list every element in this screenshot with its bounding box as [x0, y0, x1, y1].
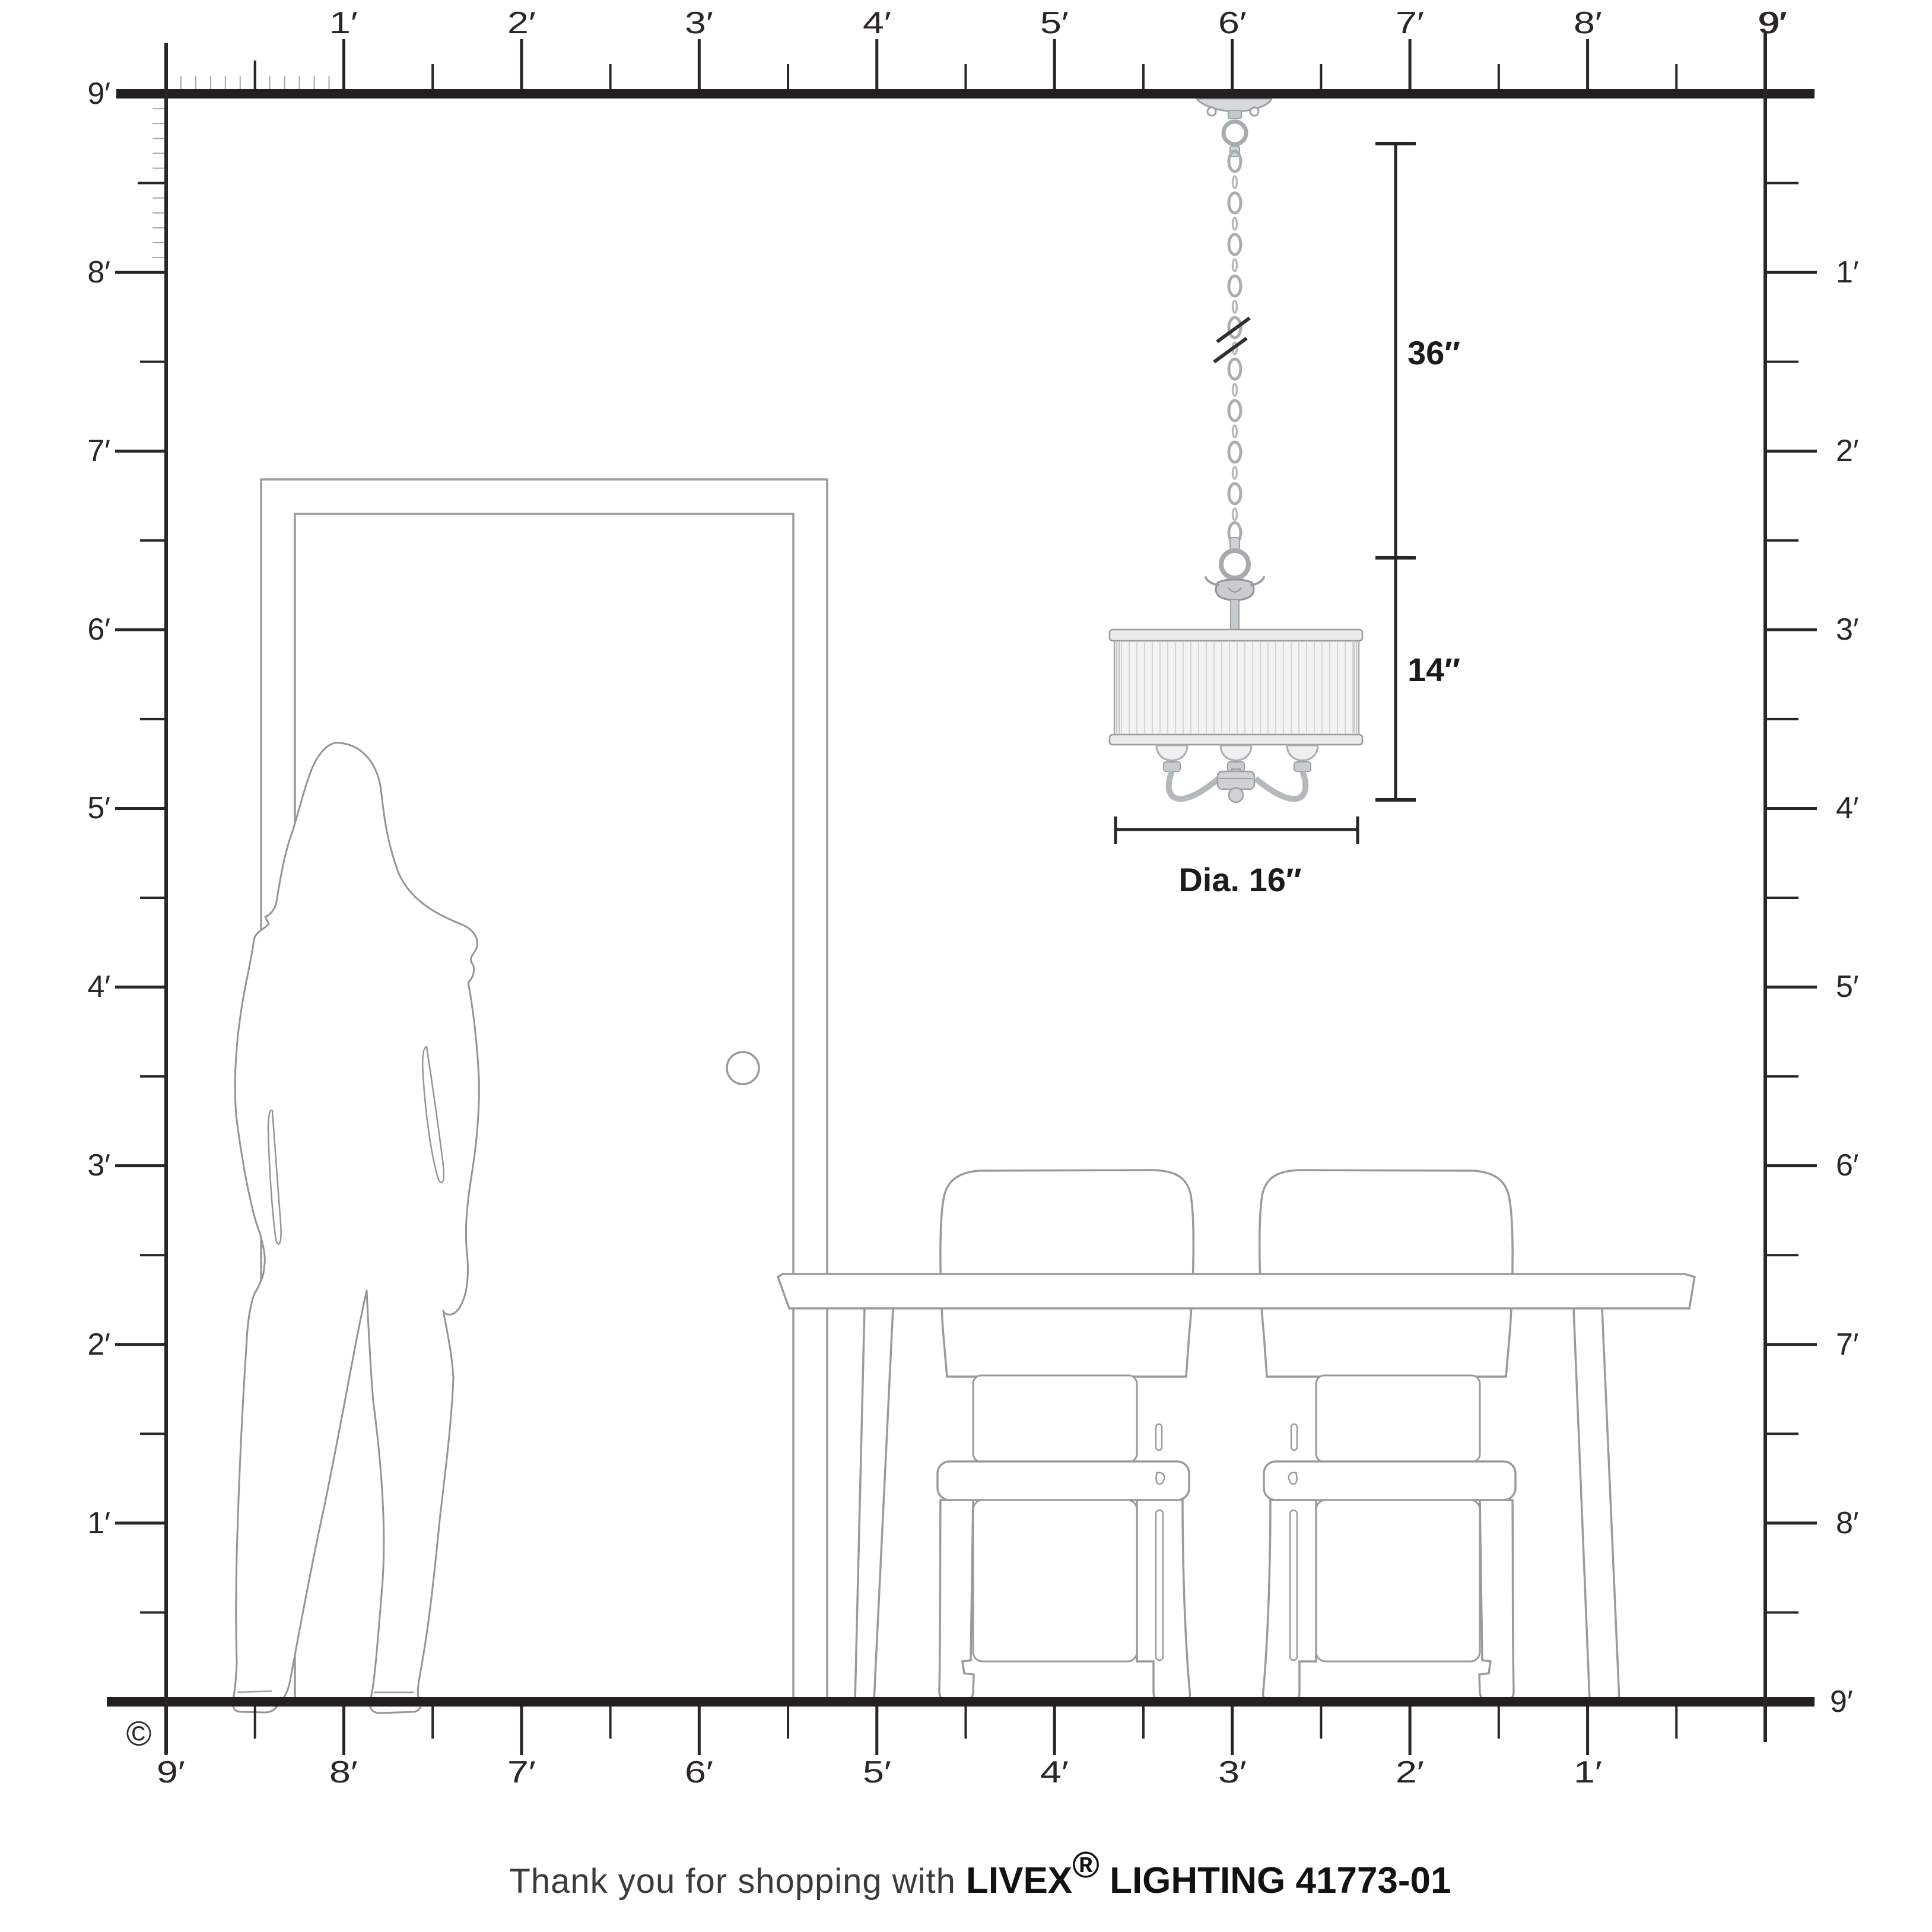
left-ruler-label: 4′ [87, 970, 110, 1004]
dining-chair-right [1260, 1170, 1515, 1702]
chair-rear-leg [939, 1500, 974, 1702]
chain-ferrule-bottom [1230, 538, 1240, 549]
right-ruler-label: 1′ [1836, 255, 1859, 290]
shade-bottom-rim [1110, 735, 1362, 745]
chain-connector [1233, 467, 1237, 479]
arm-left [1169, 771, 1219, 799]
bottom-ruler-label: 2′ [1396, 1755, 1424, 1790]
top-ruler-label: 1′ [329, 6, 358, 40]
finial-ball [1229, 788, 1243, 802]
product-number: LIGHTING 41773-01 [1100, 1860, 1451, 1901]
chain-connector [1233, 218, 1237, 230]
left-ruler-label: 7′ [87, 434, 110, 468]
dining-chair-left [938, 1170, 1193, 1702]
chain-connector [1233, 384, 1237, 396]
chain-connector [1233, 176, 1237, 188]
tulip-fitter [1206, 577, 1264, 600]
right-ruler-label: 7′ [1836, 1327, 1859, 1362]
dining-table [778, 1274, 1695, 1701]
socket-right [1294, 762, 1311, 771]
woman-outline [233, 743, 479, 1713]
canopy-collar [1228, 110, 1241, 119]
right-ruler-label: 4′ [1836, 791, 1859, 825]
woman-silhouette [233, 743, 479, 1713]
bottom-ruler-label: 3′ [1218, 1755, 1247, 1790]
chair-upright-slot [1156, 1424, 1162, 1450]
chain-link [1229, 401, 1241, 421]
top-ruler-label: 8′ [1574, 6, 1602, 40]
footer-text: Thank you for shopping with LIVEX® LIGHT… [509, 1845, 1451, 1901]
pendant-light [1110, 98, 1362, 802]
chain-connector [1233, 301, 1237, 313]
bottom-ruler-label: 8′ [329, 1755, 358, 1790]
chain-link [1229, 234, 1241, 255]
bulb-center [1221, 745, 1251, 761]
top-ruler-label: 4′ [863, 6, 891, 40]
loop-ring [1221, 551, 1248, 578]
right-ruler-line [1763, 33, 1767, 1742]
hub [1218, 771, 1254, 789]
left-ruler-label: 8′ [87, 255, 110, 290]
top-ruler-label: 2′ [507, 6, 536, 40]
diameter-dimension: Dia. 16″ [1116, 816, 1358, 898]
diagram-page: 1′ 2′ 3′ 4′ 5′ 6′ 7′ 8′ 9′ 9′ 8′ 7′ 6′ 5… [0, 0, 1932, 1932]
left-ruler-label: 2′ [87, 1327, 110, 1362]
shade-top-rim [1110, 630, 1362, 641]
left-ruler-label: 9′ [87, 77, 110, 111]
left-ruler-label: 5′ [87, 791, 110, 825]
chain-connector [1233, 425, 1237, 437]
left-ruler-label: 6′ [87, 612, 110, 647]
left-ruler-label: 3′ [87, 1148, 110, 1183]
copyright-mark: © [126, 1715, 152, 1753]
chain-link [1229, 359, 1241, 379]
bottom-ruler-label: 1′ [1574, 1755, 1602, 1790]
table-leg-right [1574, 1308, 1619, 1701]
top-ruler-label: 3′ [685, 6, 713, 40]
door-knob [727, 1052, 759, 1084]
bottom-ruler-label: 5′ [863, 1755, 891, 1790]
chain-drop-dimension-label: 36″ [1407, 334, 1460, 371]
arm-right [1256, 771, 1305, 799]
chain-break-mark [1214, 318, 1250, 362]
right-ruler-label: 3′ [1836, 612, 1859, 647]
left-ruler-line [164, 43, 168, 1754]
stem-rod [1231, 599, 1239, 633]
chair-seat [938, 1461, 1189, 1500]
right-ruler-label: 8′ [1836, 1506, 1859, 1540]
chair-back-opening [973, 1375, 1137, 1462]
brand-name: LIVEX [966, 1860, 1072, 1901]
chair-leg-slot [1156, 1510, 1163, 1660]
chain-link [1229, 193, 1241, 213]
table-top [778, 1274, 1695, 1308]
chain-connector [1233, 509, 1237, 520]
chair-seat-notch [1156, 1473, 1164, 1484]
floor-bar [107, 1697, 1815, 1707]
fixture-height-dimension-label: 14″ [1407, 651, 1460, 688]
drop-height-dimension: 36″ 14″ [1375, 144, 1460, 800]
bottom-ruler-label: 7′ [507, 1755, 536, 1790]
bottom-ruler-label: 4′ [1040, 1755, 1069, 1790]
top-ruler-label: 6′ [1218, 6, 1247, 40]
top-ruler-label: 7′ [1396, 6, 1424, 40]
diameter-dimension-label: Dia. 16″ [1178, 861, 1301, 898]
bottom-ruler-label: 6′ [685, 1755, 713, 1790]
hook-ring [1224, 122, 1246, 144]
right-ruler-label-top: 9′ [1759, 6, 1787, 40]
drum-shade [1110, 630, 1362, 745]
left-ruler-label: 1′ [87, 1506, 110, 1540]
scale-diagram: 1′ 2′ 3′ 4′ 5′ 6′ 7′ 8′ 9′ 9′ 8′ 7′ 6′ 5… [0, 0, 1932, 1932]
ceiling-bar [116, 89, 1815, 98]
bulb-left [1156, 745, 1187, 761]
chair-underseat-opening [973, 1500, 1137, 1661]
registered-mark: ® [1072, 1845, 1100, 1886]
table-leg-left [855, 1308, 893, 1701]
chain-link [1229, 276, 1241, 296]
canopy-loop-left [1207, 107, 1216, 116]
candle-arms [1156, 745, 1318, 802]
socket-left [1164, 762, 1180, 771]
right-ruler-label: 5′ [1836, 970, 1859, 1004]
footer-prefix: Thank you for shopping with [509, 1862, 966, 1901]
right-ruler-label: 6′ [1836, 1148, 1859, 1183]
bulb-right [1287, 745, 1318, 761]
bottom-ruler-label: 9′ [157, 1755, 185, 1790]
top-ruler-label: 5′ [1040, 6, 1069, 40]
right-ruler-label-bottom: 9′ [1830, 1685, 1853, 1719]
right-ruler-label: 2′ [1836, 434, 1859, 468]
chain-link [1229, 484, 1241, 504]
chain-link [1229, 442, 1241, 462]
chain-connector [1233, 259, 1237, 271]
canopy-loop-right [1250, 107, 1259, 116]
